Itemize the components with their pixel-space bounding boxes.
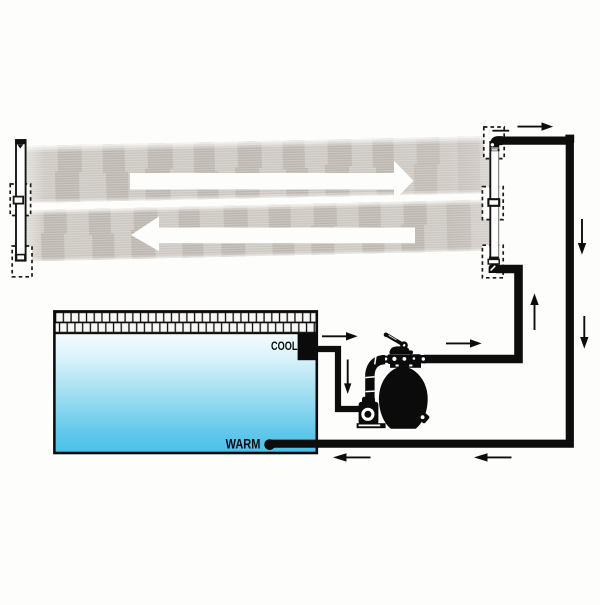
svg-text:COOL: COOL — [271, 339, 298, 353]
svg-text:WARM: WARM — [226, 436, 261, 451]
